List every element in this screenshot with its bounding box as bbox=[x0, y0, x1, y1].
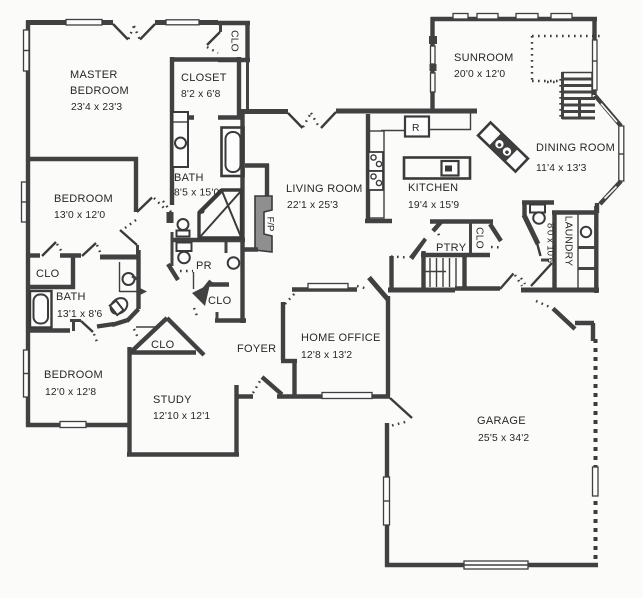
svg-text:GARAGE: GARAGE bbox=[477, 415, 526, 427]
svg-text:22'1 x 25'3: 22'1 x 25'3 bbox=[287, 200, 338, 211]
svg-text:25'5 x 34'2: 25'5 x 34'2 bbox=[478, 433, 529, 444]
svg-text:LIVING ROOM: LIVING ROOM bbox=[286, 183, 363, 195]
svg-text:23'4 x 23'3: 23'4 x 23'3 bbox=[71, 102, 122, 113]
svg-text:12'10 x 12'1: 12'10 x 12'1 bbox=[153, 411, 210, 422]
svg-text:19'4 x 15'9: 19'4 x 15'9 bbox=[408, 200, 459, 211]
svg-text:KITCHEN: KITCHEN bbox=[408, 182, 458, 194]
svg-text:BEDROOM: BEDROOM bbox=[70, 85, 129, 97]
svg-text:HOME OFFICE: HOME OFFICE bbox=[301, 332, 381, 344]
svg-text:11'4 x 13'3: 11'4 x 13'3 bbox=[536, 163, 587, 174]
svg-text:F/P: F/P bbox=[265, 217, 276, 232]
svg-text:CLO: CLO bbox=[208, 295, 232, 307]
svg-text:13'0 x 12'0: 13'0 x 12'0 bbox=[54, 210, 105, 221]
svg-text:12'8 x 13'2: 12'8 x 13'2 bbox=[301, 350, 352, 361]
svg-text:PTRY: PTRY bbox=[436, 242, 467, 254]
svg-text:BATH: BATH bbox=[174, 172, 204, 184]
svg-text:8'0 x 10'6: 8'0 x 10'6 bbox=[545, 223, 556, 263]
svg-text:8'5 x 15'0: 8'5 x 15'0 bbox=[174, 188, 220, 199]
svg-text:LAUNDRY: LAUNDRY bbox=[563, 216, 574, 266]
svg-text:BATH: BATH bbox=[56, 291, 86, 303]
svg-text:CLO: CLO bbox=[229, 30, 240, 52]
svg-text:SUNROOM: SUNROOM bbox=[454, 52, 514, 64]
svg-text:CLO: CLO bbox=[151, 339, 175, 351]
svg-text:12'0 x 12'8: 12'0 x 12'8 bbox=[45, 387, 96, 398]
svg-text:20'0 x 12'0: 20'0 x 12'0 bbox=[454, 69, 505, 80]
svg-text:BEDROOM: BEDROOM bbox=[54, 193, 113, 205]
svg-text:CLOSET: CLOSET bbox=[181, 72, 227, 84]
svg-text:CLO: CLO bbox=[36, 268, 60, 280]
svg-text:MASTER: MASTER bbox=[70, 69, 118, 81]
svg-text:BEDROOM: BEDROOM bbox=[44, 369, 103, 381]
svg-text:FOYER: FOYER bbox=[237, 343, 276, 355]
svg-text:PR: PR bbox=[196, 260, 212, 272]
svg-text:DINING ROOM: DINING ROOM bbox=[536, 142, 615, 154]
svg-text:8'2 x 6'8: 8'2 x 6'8 bbox=[181, 89, 221, 100]
svg-text:STUDY: STUDY bbox=[153, 394, 192, 406]
svg-text:CLO: CLO bbox=[474, 227, 485, 249]
svg-text:R: R bbox=[412, 123, 420, 134]
svg-text:13'1 x 8'6: 13'1 x 8'6 bbox=[57, 309, 103, 320]
